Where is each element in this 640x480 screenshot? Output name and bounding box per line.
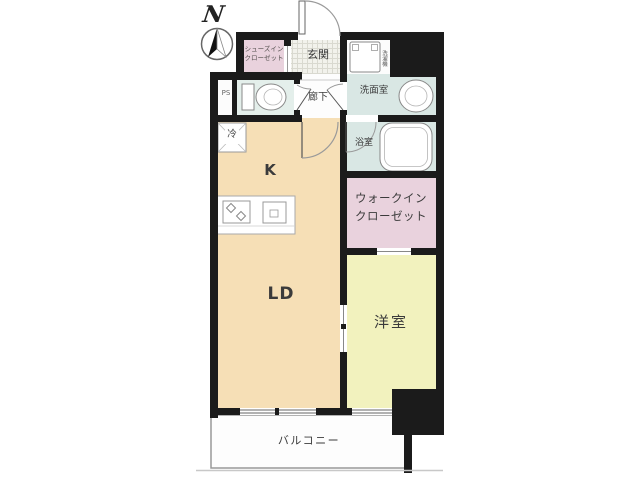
living-dining-label: LD — [258, 285, 304, 304]
floor-plan: N シューズイン クローゼット 玄関 洗濯機 PS 廊下 洗面室 浴室 冷 K … — [0, 0, 640, 480]
washing-machine-label: 洗濯機 — [380, 41, 388, 75]
bathroom-label: 浴室 — [346, 139, 382, 149]
hallway-label: 廊下 — [294, 92, 342, 103]
kitchen-label: K — [255, 162, 285, 179]
walk-in-closet-label: ウォークイン クローゼット — [342, 190, 440, 225]
washroom-label: 洗面室 — [346, 86, 402, 96]
shoe-closet-label: シューズイン クローゼット — [241, 45, 287, 62]
pipe-space-label: PS — [217, 90, 235, 98]
refrigerator-label: 冷 — [225, 130, 239, 140]
labels: N シューズイン クローゼット 玄関 洗濯機 PS 廊下 洗面室 浴室 冷 K … — [0, 0, 640, 480]
north-label: N — [201, 2, 226, 27]
balcony-label: バルコニー — [211, 435, 407, 447]
entrance-label: 玄関 — [292, 49, 344, 61]
western-room-label: 洋室 — [342, 314, 440, 331]
